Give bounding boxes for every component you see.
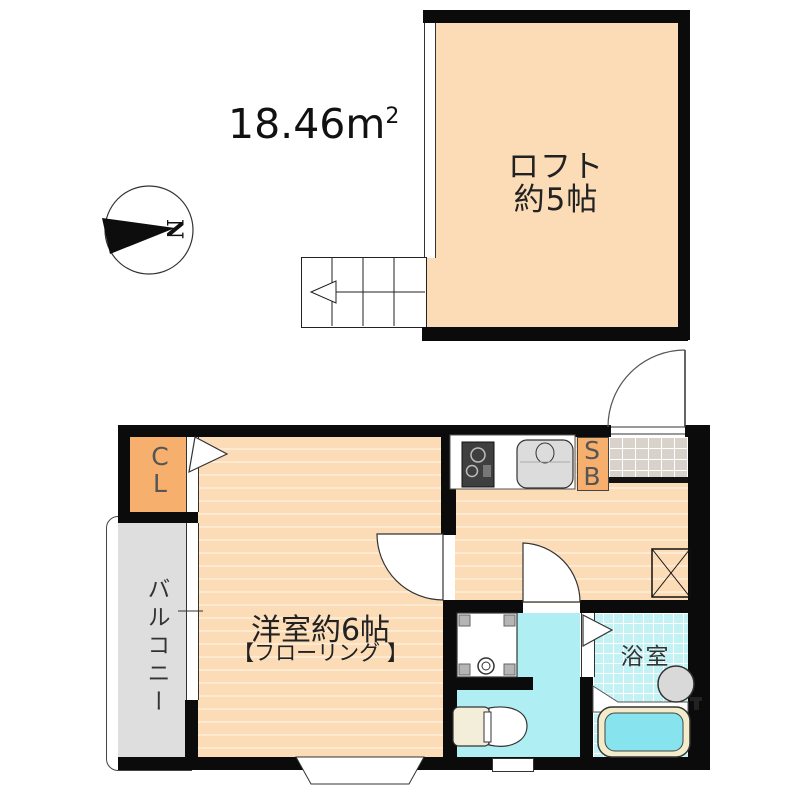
washroom-door bbox=[523, 543, 580, 602]
bay-step bbox=[296, 757, 424, 784]
entrance-door bbox=[608, 350, 685, 434]
floor-plan: 18.46m2 N ロフト 約5帖 洋室約6帖 【フローリング 】 浴室 バルコ… bbox=[0, 0, 800, 800]
kitchen-faucet bbox=[536, 443, 554, 463]
compass-north-letter: N bbox=[161, 219, 187, 239]
main-room-finish: 【フローリング 】 bbox=[198, 637, 443, 667]
area-superscript: 2 bbox=[385, 104, 399, 129]
washing-machine-pan bbox=[457, 613, 517, 677]
drain bbox=[478, 658, 494, 674]
bath-faucet bbox=[690, 697, 702, 710]
closet-letter-2: L bbox=[146, 470, 174, 497]
shoe-box-letter-1: S bbox=[578, 438, 606, 464]
bath-sink bbox=[658, 666, 694, 702]
utility-x-box bbox=[652, 549, 690, 597]
shoe-box-label: S B bbox=[578, 438, 606, 490]
shoe-box-letter-2: B bbox=[578, 464, 606, 490]
closet-letter-1: C bbox=[146, 443, 174, 470]
loft-size: 約5帖 bbox=[456, 174, 656, 219]
area-unit: m bbox=[345, 100, 385, 148]
area-label: 18.46m2 bbox=[228, 100, 399, 148]
balcony-name: バルコニー bbox=[139, 537, 173, 757]
kitchen-counter bbox=[450, 435, 575, 489]
area-value: 18.46 bbox=[228, 100, 345, 148]
staircase-direction-arrow bbox=[311, 281, 336, 303]
plan-linework bbox=[0, 0, 800, 800]
closet-label: C L bbox=[146, 443, 174, 497]
main-room-door bbox=[377, 534, 443, 600]
bathtub bbox=[598, 707, 690, 757]
toilet bbox=[453, 707, 527, 746]
closet-door-marker bbox=[189, 437, 227, 472]
bathroom-name: 浴室 bbox=[603, 637, 688, 671]
